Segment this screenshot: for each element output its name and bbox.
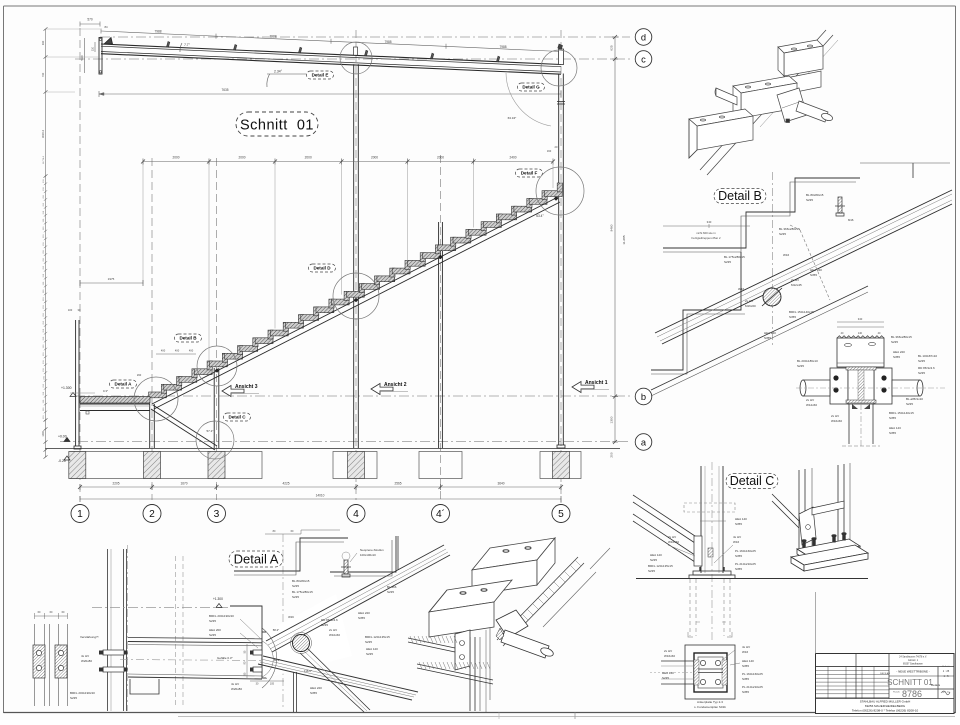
svg-text:S355: S355	[735, 567, 742, 571]
svg-text:HEA 140: HEA 140	[742, 659, 754, 663]
svg-text:RD 88.9x3.6: RD 88.9x3.6	[321, 618, 338, 622]
svg-text:Detail E: Detail E	[312, 73, 329, 78]
svg-text:S355: S355	[358, 616, 365, 620]
svg-text:S355: S355	[742, 664, 749, 668]
svg-text:1300: 1300	[42, 431, 45, 437]
svg-text:STAHLBAU ALFRED MULLER GmbH: STAHLBAU ALFRED MULLER GmbH	[860, 700, 911, 704]
svg-text:63.4°: 63.4°	[536, 214, 544, 218]
svg-text:a: a	[641, 437, 647, 447]
svg-text:2x HV: 2x HV	[745, 299, 753, 303]
svg-text:S355: S355	[889, 431, 896, 435]
svg-text:4x HV: 4x HV	[742, 645, 750, 649]
svg-text:S235: S235	[891, 340, 898, 344]
svg-text:HEA 143: HEA 143	[889, 426, 901, 430]
svg-text:S355: S355	[889, 416, 896, 420]
svg-text:b: b	[641, 392, 646, 402]
svg-text:W16: W16	[288, 615, 294, 619]
svg-text:Ansicht 2: Ansicht 2	[384, 382, 407, 388]
svg-text:- NEUE WESTTRIBÜNE -: - NEUE WESTTRIBÜNE -	[896, 670, 929, 674]
svg-text:nicht 600 wie in: nicht 600 wie in	[696, 231, 716, 235]
svg-text:Detail D: Detail D	[313, 266, 331, 271]
svg-text:Detail B: Detail B	[718, 189, 762, 203]
svg-text:S355: S355	[810, 273, 817, 277]
svg-text:4x HV: 4x HV	[231, 682, 239, 686]
svg-text:HEA 220: HEA 220	[810, 268, 822, 272]
svg-text:S355: S355	[310, 691, 317, 695]
svg-text:110: 110	[92, 46, 95, 51]
svg-text:S235: S235	[387, 590, 394, 594]
svg-text:W16x60: W16x60	[831, 419, 842, 423]
svg-text:570: 570	[87, 18, 93, 22]
svg-text:340: 340	[707, 220, 712, 224]
svg-text:S355: S355	[742, 677, 749, 681]
svg-text:S235: S235	[292, 584, 299, 588]
svg-text:Detail C: Detail C	[730, 474, 774, 488]
svg-text:S235: S235	[779, 232, 786, 236]
svg-text:Schnitt 01: Schnitt 01	[240, 118, 314, 134]
svg-text:100: 100	[68, 308, 73, 312]
svg-text:S355: S355	[789, 315, 796, 319]
svg-text:590: 590	[80, 55, 84, 60]
svg-text:2: 2	[149, 509, 155, 520]
svg-text:140: 140	[858, 332, 863, 335]
svg-text:W20x80: W20x80	[231, 687, 242, 691]
svg-text:84: 84	[104, 25, 108, 29]
svg-text:BL 366x280x15: BL 366x280x15	[779, 227, 800, 231]
svg-text:c: c	[641, 54, 646, 64]
svg-text:1670: 1670	[180, 482, 187, 486]
svg-text:0.3°: 0.3°	[103, 389, 108, 393]
svg-text:Ansicht 1: Ansicht 1	[585, 380, 608, 386]
svg-text:Maßstab: Maßstab	[942, 665, 951, 668]
svg-text:W16: W16	[733, 540, 740, 544]
svg-text:M16x60: M16x60	[745, 304, 756, 308]
svg-text:Fertigteiltreppen-Plan 2: Fertigteiltreppen-Plan 2	[691, 236, 721, 240]
svg-text:HEA 120: HEA 120	[662, 671, 674, 675]
svg-text:200: 200	[610, 452, 614, 457]
svg-text:330: 330	[41, 40, 45, 45]
svg-text:HEA 140: HEA 140	[735, 517, 747, 521]
svg-text:2x HV: 2x HV	[664, 649, 672, 653]
svg-text:Detail C: Detail C	[228, 415, 246, 420]
svg-text:2x HV: 2x HV	[668, 535, 676, 539]
svg-text:400: 400	[175, 349, 180, 353]
svg-text:HEA 220: HEA 220	[358, 611, 370, 615]
svg-text:s. Fundamentplan S01b: s. Fundamentplan S01b	[694, 705, 726, 709]
svg-text:d: d	[641, 32, 646, 42]
svg-text:BL 200x186x10: BL 200x186x10	[797, 359, 818, 363]
svg-text:2565: 2565	[394, 482, 401, 486]
svg-text:7988: 7988	[499, 45, 506, 49]
svg-text:HEA 140: HEA 140	[764, 331, 776, 335]
svg-text:1300: 1300	[610, 416, 614, 423]
svg-text:Detail G: Detail G	[522, 85, 540, 90]
svg-text:BRFL 200x190x30: BRFL 200x190x30	[209, 614, 234, 618]
svg-text:W16x60: W16x60	[664, 654, 675, 658]
svg-text:Telefon (06226) 8208-0 * Telef: Telefon (06226) 8208-0 * Telefax (06226)…	[852, 709, 919, 713]
svg-text:2000: 2000	[305, 156, 312, 160]
svg-text:100x100x10: 100x100x10	[360, 553, 376, 557]
svg-text:BRFL 200x190x30: BRFL 200x190x30	[70, 691, 95, 695]
svg-text:2000: 2000	[238, 156, 245, 160]
svg-text:730: 730	[41, 72, 45, 77]
svg-text:HEA 220: HEA 220	[310, 686, 322, 690]
svg-text:7635: 7635	[221, 88, 228, 92]
svg-text:M16: M16	[848, 218, 854, 222]
svg-text:BL 175x280x15: BL 175x280x15	[724, 255, 745, 259]
svg-text:Neoprene-Streifen: Neoprene-Streifen	[360, 548, 384, 552]
svg-text:3: 3	[214, 509, 220, 520]
svg-text:625: 625	[610, 45, 614, 50]
svg-text:S235: S235	[724, 260, 731, 264]
svg-text:PL 210x210x25: PL 210x210x25	[735, 562, 756, 566]
svg-text:58.2°: 58.2°	[273, 628, 280, 632]
svg-text:69207 Sandhausen: 69207 Sandhausen	[903, 664, 924, 666]
svg-text:2000: 2000	[172, 156, 179, 160]
svg-text:-0.20: -0.20	[58, 459, 66, 463]
svg-text:7988: 7988	[154, 30, 161, 34]
svg-text:BRFL 150x140x15: BRFL 150x140x15	[789, 310, 814, 314]
svg-text:2000: 2000	[371, 156, 378, 160]
svg-text:BRFL 120x135x15: BRFL 120x135x15	[648, 564, 673, 568]
svg-text:S235: S235	[906, 402, 913, 406]
svg-text:+1.300: +1.300	[61, 386, 72, 390]
svg-text:PL 160x160x25: PL 160x160x25	[742, 672, 763, 676]
svg-text:2.34°: 2.34°	[274, 70, 283, 74]
svg-text:BL 100x87x10: BL 100x87x10	[918, 354, 937, 358]
svg-text:W12x60: W12x60	[806, 403, 817, 407]
svg-text:1: 1	[77, 509, 83, 520]
svg-text:1 : 5: 1 : 5	[943, 674, 949, 678]
svg-text:3640: 3640	[497, 482, 504, 486]
svg-text:HEA 200: HEA 200	[209, 628, 221, 632]
svg-text:S235: S235	[292, 595, 299, 599]
svg-text:S235: S235	[321, 623, 328, 627]
svg-text:8786: 8786	[902, 689, 922, 699]
svg-text:PL 160x160x25: PL 160x160x25	[735, 549, 756, 553]
svg-text:4225: 4225	[282, 482, 289, 486]
svg-text:Verstärkung?!: Verstärkung?!	[80, 635, 99, 639]
svg-text:Detail F: Detail F	[521, 171, 538, 176]
svg-text:Details: Details	[931, 683, 941, 687]
svg-text:HEA 120: HEA 120	[650, 553, 662, 557]
svg-text:160: 160	[547, 149, 552, 153]
svg-text:W16x60: W16x60	[668, 540, 679, 544]
svg-text:W10x60: W10x60	[329, 633, 340, 637]
svg-text:S235: S235	[918, 371, 925, 375]
svg-text:11774.4: 11774.4	[43, 155, 45, 164]
svg-text:58.2°: 58.2°	[274, 658, 281, 662]
svg-text:7988: 7988	[384, 40, 391, 44]
svg-text:+0.00: +0.00	[58, 435, 67, 439]
svg-text:Detail B: Detail B	[179, 336, 197, 341]
svg-text:400: 400	[189, 349, 194, 353]
svg-text:BL 175x280x15: BL 175x280x15	[292, 590, 313, 594]
svg-text:1975: 1975	[108, 277, 115, 281]
svg-text:9460: 9460	[610, 224, 614, 231]
svg-text:+1.300: +1.300	[213, 597, 223, 601]
svg-text:116.9°: 116.9°	[304, 669, 312, 673]
svg-text:24 Sandhausen 74078 e.V.: 24 Sandhausen 74078 e.V.	[899, 657, 927, 659]
svg-text:Detail A: Detail A	[234, 551, 279, 566]
svg-text:69256 MAUER/HEIDELBERG: 69256 MAUER/HEIDELBERG	[865, 704, 906, 708]
svg-text:5: 5	[558, 509, 564, 520]
svg-text:S355: S355	[742, 690, 749, 694]
svg-text:2400: 2400	[509, 156, 516, 160]
svg-text:BL 80x80x15: BL 80x80x15	[806, 193, 824, 197]
svg-text:2x HV: 2x HV	[791, 278, 799, 282]
svg-text:S355: S355	[735, 554, 742, 558]
svg-text:W16: W16	[783, 253, 790, 257]
svg-text:Ansicht 3: Ansicht 3	[235, 384, 258, 390]
svg-text:BL 80x80x15: BL 80x80x15	[292, 579, 310, 583]
svg-text:DRCK AN: DRCK AN	[880, 672, 890, 675]
svg-text:SCHNITT 01: SCHNITT 01	[887, 678, 933, 687]
svg-text:S235: S235	[806, 198, 813, 202]
svg-text:63.34°: 63.34°	[508, 116, 518, 120]
svg-text:4x HV: 4x HV	[81, 654, 89, 658]
svg-text:57.1°: 57.1°	[206, 429, 214, 433]
svg-text:W16: W16	[738, 287, 745, 291]
svg-text:Jahnstr. 1: Jahnstr. 1	[908, 659, 919, 662]
svg-text:S355: S355	[893, 355, 900, 359]
svg-text:400: 400	[161, 349, 166, 353]
svg-text:Plan-Nr.: Plan-Nr.	[893, 692, 901, 694]
svg-text:BRFL 150x140x15: BRFL 150x140x15	[889, 411, 914, 415]
svg-text:14010: 14010	[316, 494, 325, 498]
svg-text:11.685: 11.685	[622, 235, 626, 245]
svg-text:2x HV: 2x HV	[831, 414, 839, 418]
svg-text:PL 210x210x25: PL 210x210x25	[742, 685, 763, 689]
svg-text:2x HV: 2x HV	[806, 398, 814, 402]
svg-text:290: 290	[137, 373, 142, 377]
svg-text:S235: S235	[209, 633, 216, 637]
svg-text:S355: S355	[764, 336, 771, 340]
svg-text:BL ø88.9x10: BL ø88.9x10	[906, 397, 923, 401]
svg-text:S235: S235	[209, 619, 216, 623]
svg-text:S235: S235	[662, 676, 669, 680]
svg-text:2x HV: 2x HV	[329, 628, 337, 632]
svg-text:S235: S235	[650, 558, 657, 562]
svg-text:4´: 4´	[436, 508, 445, 520]
svg-text:S235: S235	[70, 696, 77, 700]
svg-text:4x HV: 4x HV	[733, 535, 741, 539]
svg-text:S235: S235	[366, 652, 373, 656]
svg-text:Ankerplatte Typ 2-3: Ankerplatte Typ 2-3	[697, 700, 723, 704]
svg-text:W20x80: W20x80	[81, 659, 92, 663]
svg-text:S235: S235	[918, 359, 925, 363]
svg-text:S235: S235	[797, 364, 804, 368]
svg-text:BL 366x280x15: BL 366x280x15	[891, 335, 912, 339]
svg-text:2000: 2000	[437, 156, 444, 160]
svg-text:S235: S235	[365, 640, 372, 644]
svg-text:W16: W16	[742, 650, 749, 654]
svg-text:3016.4: 3016.4	[41, 129, 45, 137]
svg-text:BL 366: BL 366	[387, 585, 397, 589]
svg-text:S355: S355	[735, 522, 742, 526]
svg-text:RD 88.9x3.6: RD 88.9x3.6	[918, 366, 935, 370]
svg-text:HEA 120: HEA 120	[366, 647, 378, 651]
svg-text:Detail A: Detail A	[115, 382, 133, 387]
svg-text:340: 340	[858, 317, 863, 321]
svg-text:105: 105	[270, 683, 275, 686]
svg-text:1 : 25: 1 : 25	[943, 669, 950, 673]
svg-text:2205: 2205	[112, 482, 119, 486]
svg-text:HEA 220: HEA 220	[893, 350, 905, 354]
svg-text:S235: S235	[648, 569, 655, 573]
svg-text:4: 4	[353, 509, 359, 520]
svg-text:M12x45: M12x45	[791, 283, 802, 287]
svg-text:7988: 7988	[269, 35, 276, 39]
svg-text:Gefälle 0.3°: Gefälle 0.3°	[217, 656, 234, 660]
svg-text:7.7°: 7.7°	[184, 43, 190, 47]
svg-text:BRFL 120x135x15: BRFL 120x135x15	[365, 635, 390, 639]
